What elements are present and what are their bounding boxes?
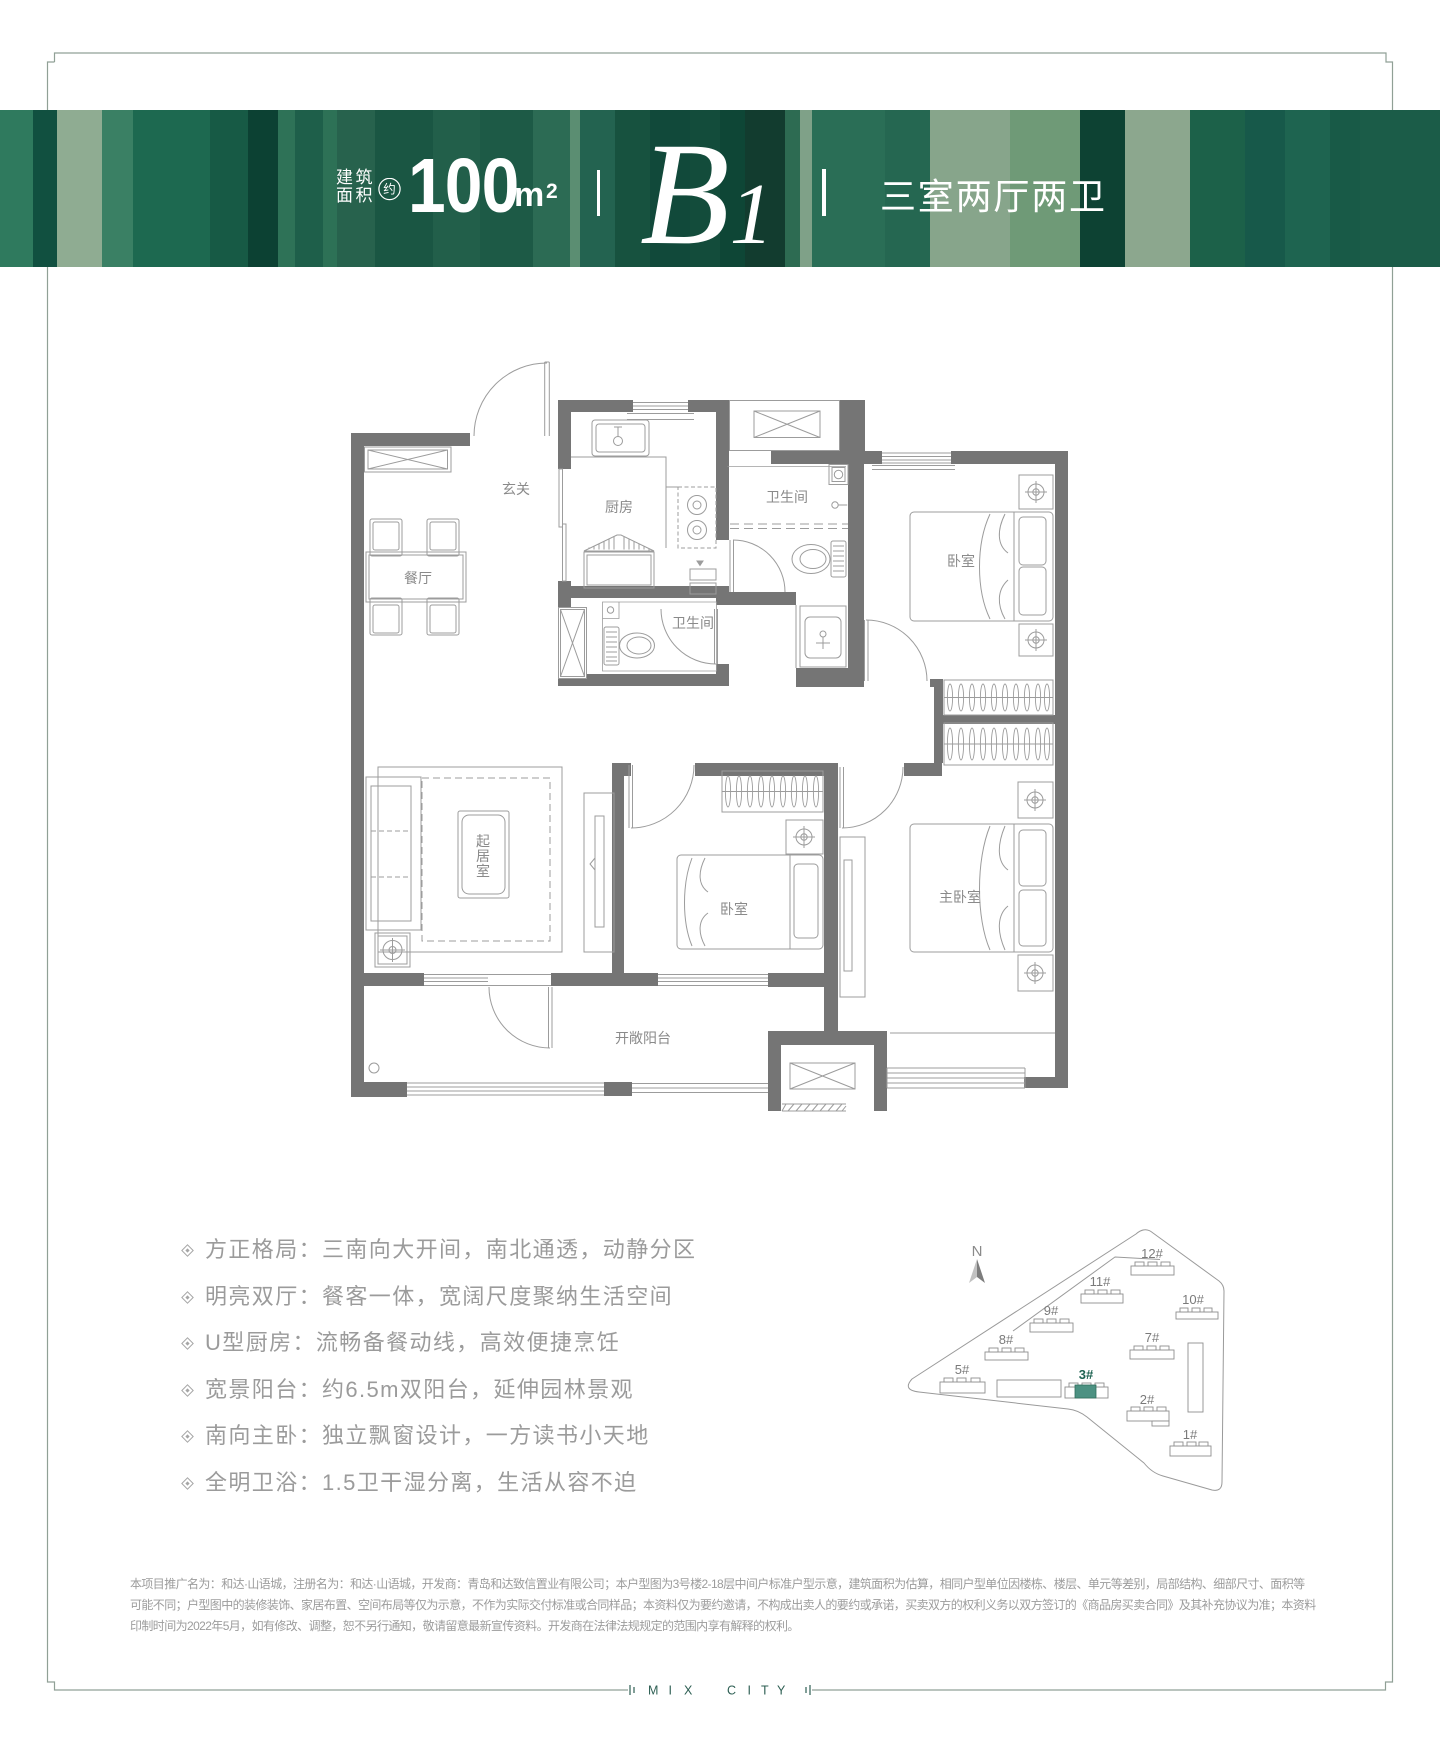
svg-text:主卧室: 主卧室 [939,889,981,905]
svg-text:T: T [761,1684,769,1698]
svg-text:厨房: 厨房 [605,499,633,515]
svg-text:9#: 9# [1044,1303,1059,1318]
svg-text:C: C [727,1684,736,1698]
svg-text:11#: 11# [1090,1274,1111,1289]
svg-text:卧室: 卧室 [947,553,975,569]
svg-text:5#: 5# [955,1362,970,1377]
svg-text:室: 室 [476,863,490,879]
svg-text:开敞阳台: 开敞阳台 [615,1030,671,1046]
svg-text:N: N [972,1243,983,1260]
svg-text:玄关: 玄关 [502,481,530,497]
svg-text:7#: 7# [1145,1330,1160,1345]
svg-text:1#: 1# [1183,1427,1198,1442]
svg-text:8#: 8# [999,1332,1014,1347]
svg-text:卫生间: 卫生间 [672,615,714,631]
svg-text:X: X [684,1684,693,1698]
svg-text:约: 约 [383,182,396,197]
svg-text:起: 起 [476,833,490,849]
svg-text:10#: 10# [1182,1292,1204,1307]
svg-text:卫生间: 卫生间 [766,489,808,505]
svg-text:M: M [648,1684,658,1698]
svg-text:卧室: 卧室 [720,901,748,917]
svg-text:居: 居 [476,848,490,864]
svg-text:2#: 2# [1140,1392,1155,1407]
svg-text:I: I [669,1684,672,1698]
svg-text:12#: 12# [1141,1246,1163,1261]
svg-text:I: I [748,1684,751,1698]
svg-text:3#: 3# [1079,1367,1094,1382]
svg-text:餐厅: 餐厅 [404,570,432,586]
svg-text:Y: Y [777,1684,786,1698]
